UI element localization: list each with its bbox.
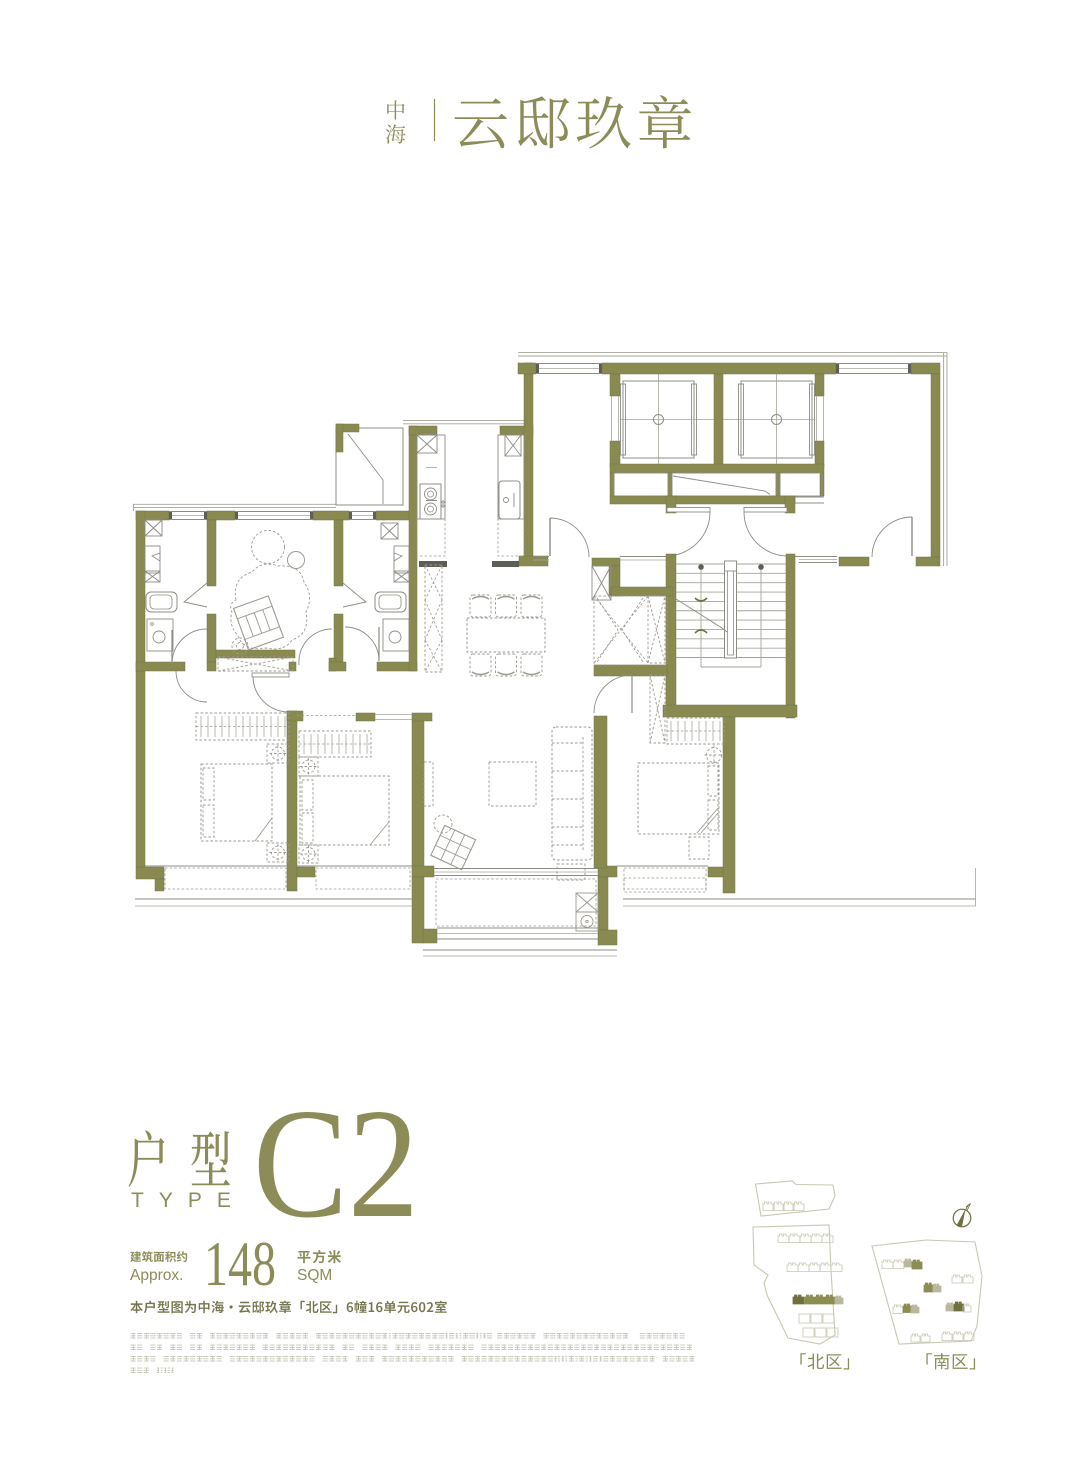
svg-text:TYPE: TYPE	[131, 1189, 246, 1212]
svg-text:C2: C2	[253, 1076, 419, 1250]
svg-text:SQM: SQM	[297, 1267, 332, 1284]
svg-text:Approx.: Approx.	[130, 1267, 183, 1284]
svg-text:148: 148	[204, 1228, 276, 1299]
